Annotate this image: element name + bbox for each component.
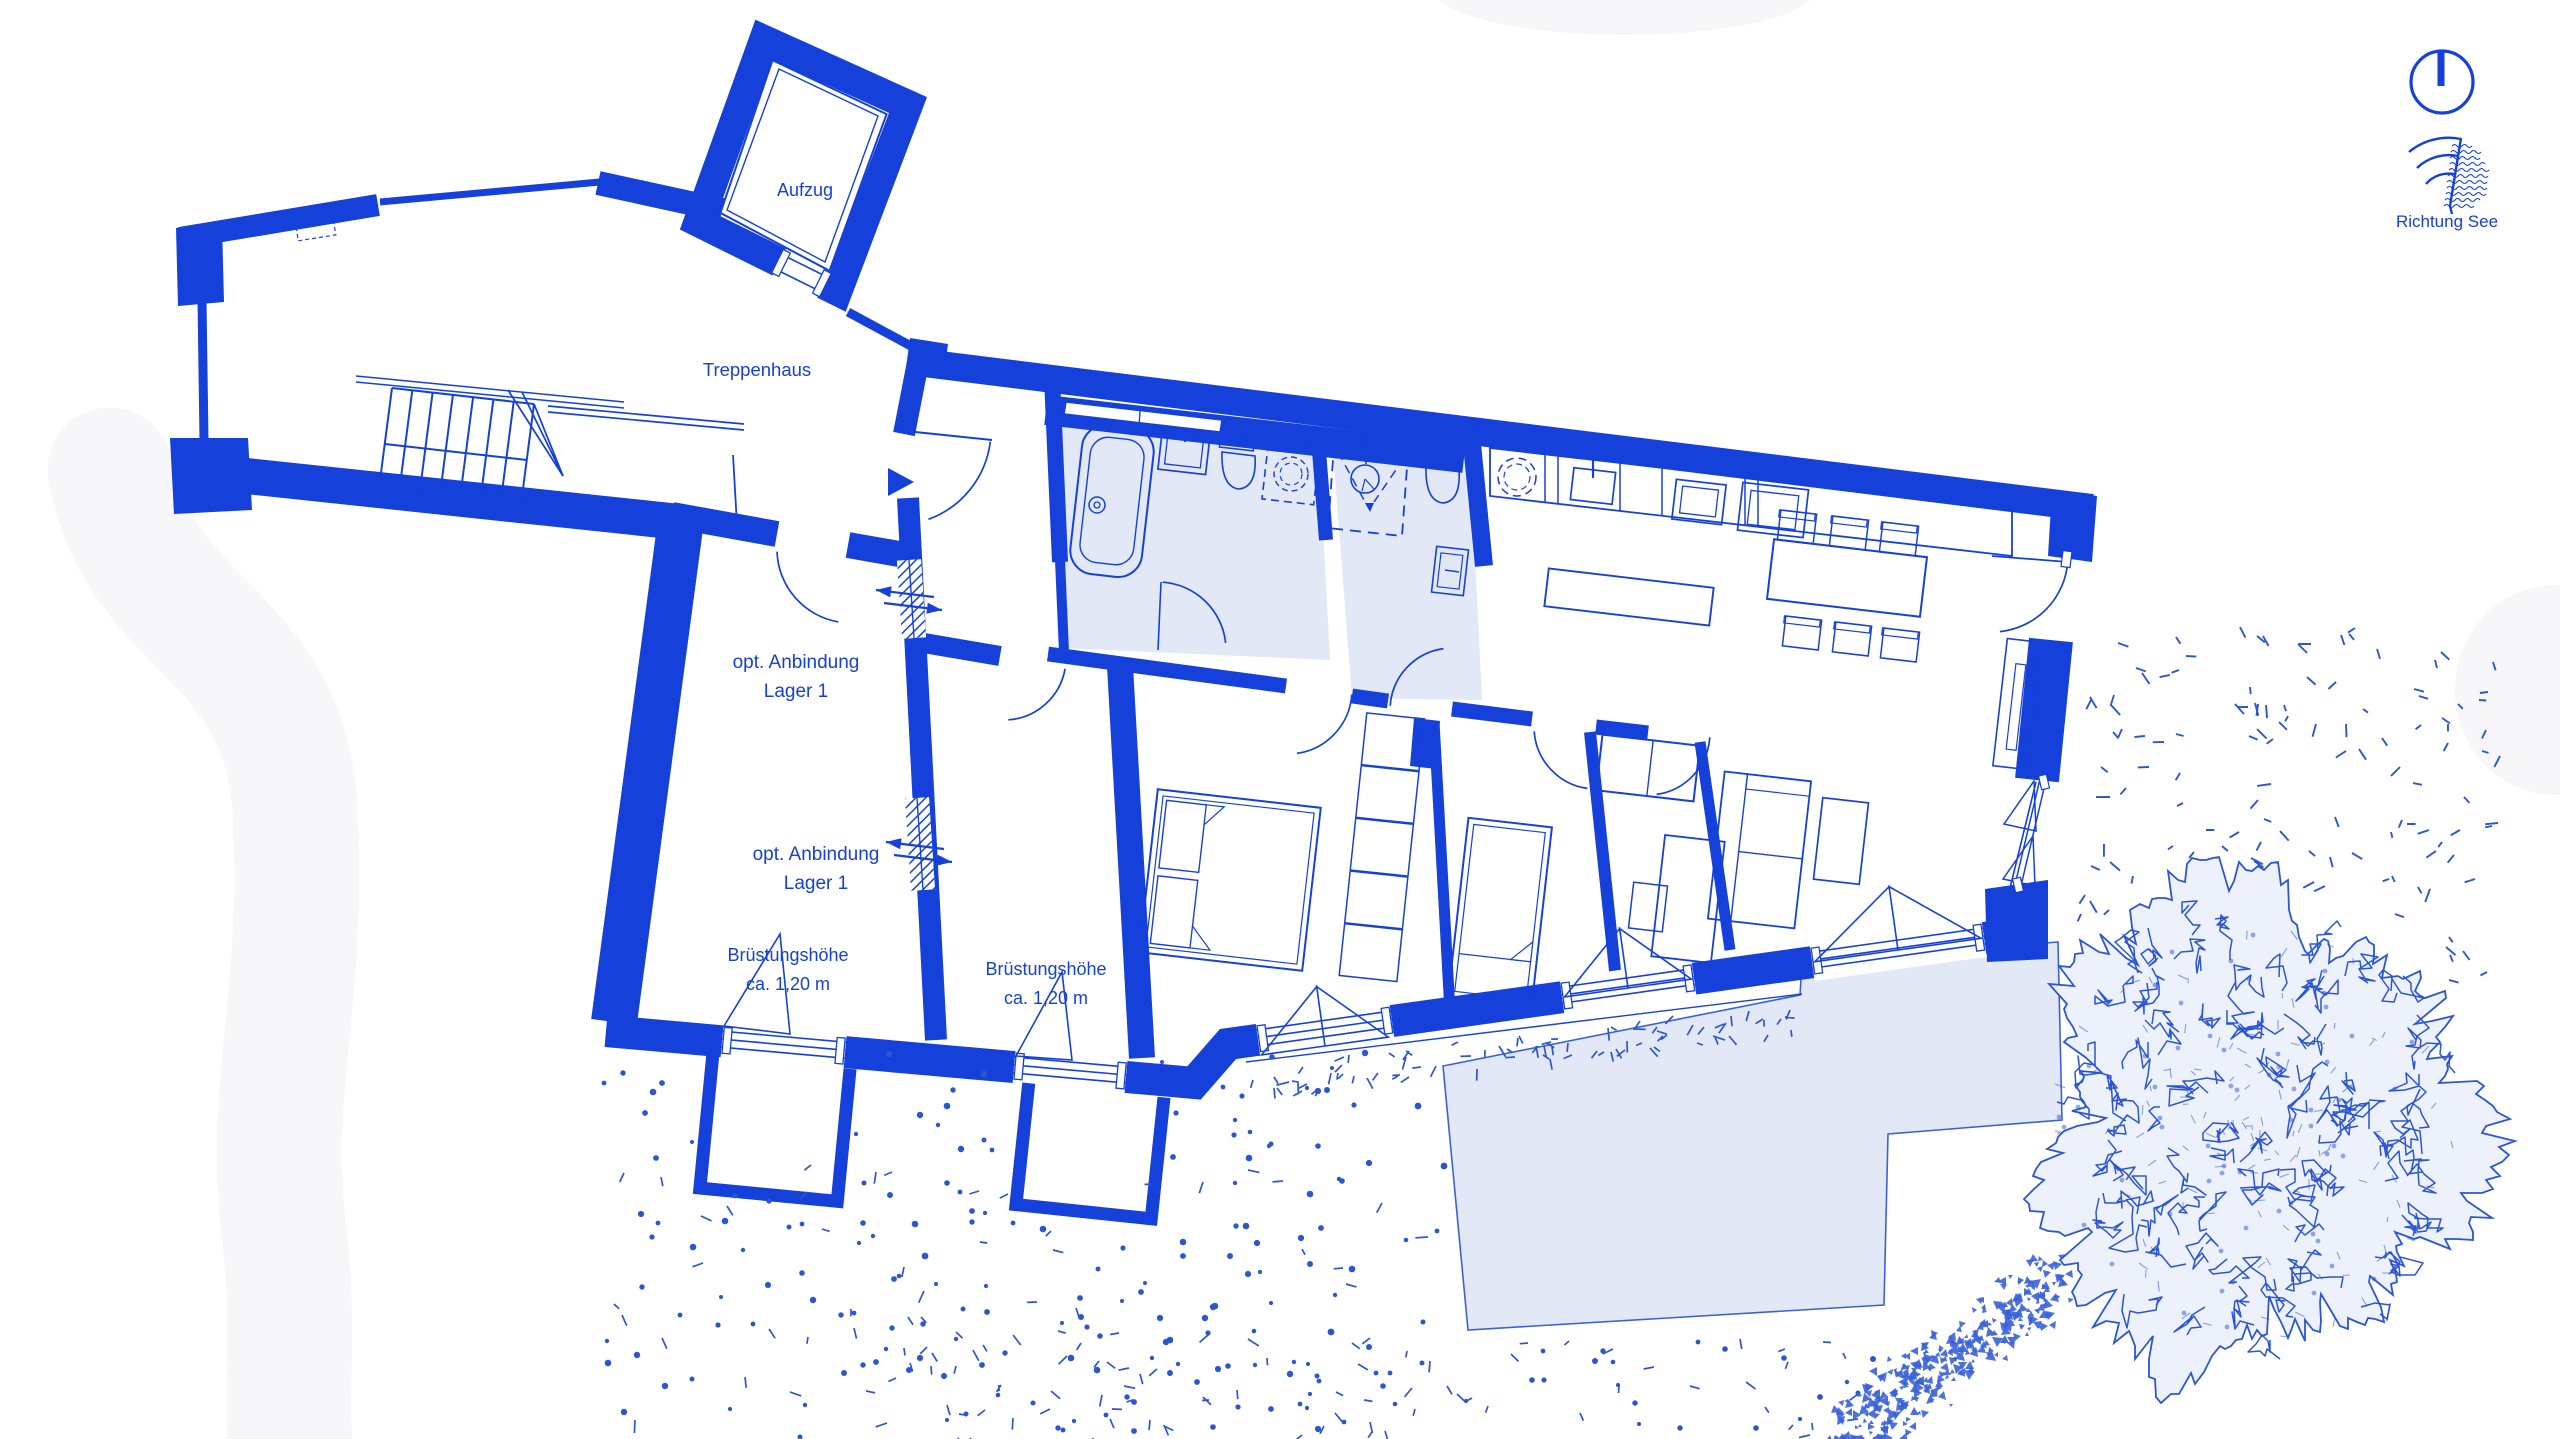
svg-text:opt. Anbindung: opt. Anbindung (733, 652, 860, 673)
svg-text:ca. 1,20 m: ca. 1,20 m (746, 974, 830, 994)
svg-text:Treppenhaus: Treppenhaus (703, 359, 811, 380)
svg-text:Lager 1: Lager 1 (764, 681, 828, 702)
svg-text:Brüstungshöhe: Brüstungshöhe (985, 959, 1106, 979)
svg-text:Brüstungshöhe: Brüstungshöhe (727, 945, 848, 965)
svg-text:ca. 1,20 m: ca. 1,20 m (1004, 988, 1088, 1008)
svg-text:opt. Anbindung: opt. Anbindung (753, 844, 880, 865)
svg-text:Richtung See: Richtung See (2396, 212, 2498, 231)
svg-text:Aufzug: Aufzug (777, 180, 833, 200)
svg-text:Lager 1: Lager 1 (784, 873, 848, 894)
